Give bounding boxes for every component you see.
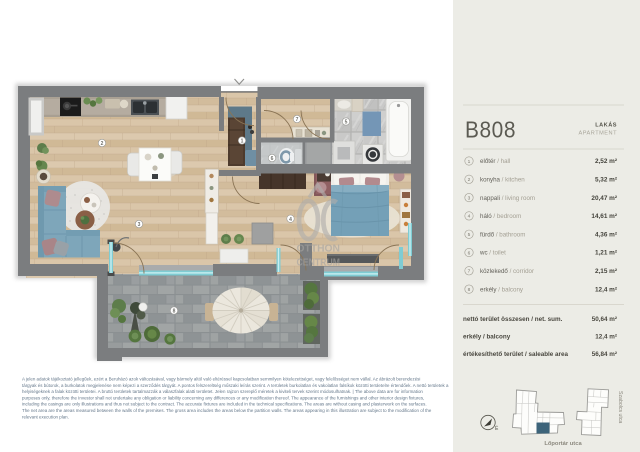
svg-text:erkély / balcony: erkély / balcony — [463, 334, 511, 341]
svg-text:50,64 m²: 50,64 m² — [592, 316, 617, 323]
svg-text:14,61 m²: 14,61 m² — [591, 213, 617, 220]
svg-text:értékesíthető terület / saleab: értékesíthető terület / saleable area — [463, 351, 568, 358]
svg-text:Lőportár utca: Lőportár utca — [544, 441, 582, 447]
svg-text:erkély / balcony: erkély / balcony — [480, 286, 524, 293]
svg-text:1: 1 — [468, 159, 471, 165]
svg-text:20,47 m²: 20,47 m² — [591, 195, 617, 202]
svg-text:háló / bedroom: háló / bedroom — [480, 213, 521, 220]
svg-text:2,52 m²: 2,52 m² — [595, 158, 617, 165]
svg-text:3: 3 — [138, 222, 141, 228]
svg-text:konyha / kitchen: konyha / kitchen — [480, 177, 525, 184]
svg-text:purposes only, therefore the I: purposes only, therefore the Investor sh… — [22, 395, 424, 400]
svg-text:2,15 m²: 2,15 m² — [595, 268, 617, 275]
svg-text:8: 8 — [173, 309, 176, 315]
svg-text:12,4 m²: 12,4 m² — [595, 334, 617, 341]
svg-text:CENTRUM: CENTRUM — [297, 257, 341, 269]
svg-text:4: 4 — [468, 214, 471, 220]
svg-text:The net area are the areas mea: The net area are the areas measured betw… — [22, 408, 432, 413]
svg-text:helyiségeknek a falak közötti: helyiségeknek a falak közötti területei.… — [22, 389, 423, 394]
svg-text:wc / toilet: wc / toilet — [479, 250, 506, 257]
svg-text:6: 6 — [468, 250, 471, 256]
svg-text:5: 5 — [345, 120, 348, 126]
svg-text:LAKÁS: LAKÁS — [595, 122, 617, 129]
svg-text:Szabolcs utca: Szabolcs utca — [617, 391, 623, 423]
svg-text:APARTMENT: APARTMENT — [579, 131, 618, 137]
svg-text:előtér / hall: előtér / hall — [480, 158, 510, 165]
svg-text:B808: B808 — [465, 117, 516, 143]
svg-text:6: 6 — [271, 156, 274, 162]
svg-text:5,32 m²: 5,32 m² — [595, 177, 617, 184]
svg-text:nappali / living room: nappali / living room — [480, 195, 535, 202]
svg-text:4: 4 — [289, 217, 292, 223]
svg-text:közlekedő / corridor: közlekedő / corridor — [480, 268, 534, 275]
svg-text:including the casings are only: including the casings are only illustrat… — [22, 402, 427, 407]
svg-text:56,84 m²: 56,84 m² — [592, 351, 617, 358]
svg-text:1: 1 — [241, 139, 244, 145]
svg-text:OTTHON: OTTHON — [297, 243, 341, 255]
svg-text:4,36 m²: 4,36 m² — [595, 231, 617, 238]
svg-text:relevant execution plan.: relevant execution plan. — [22, 414, 69, 419]
svg-text:fürdő / bathroom: fürdő / bathroom — [480, 231, 525, 238]
svg-text:12,4 m²: 12,4 m² — [595, 286, 617, 293]
svg-text:5: 5 — [468, 232, 471, 238]
svg-text:2: 2 — [101, 141, 104, 147]
svg-text:1,21 m²: 1,21 m² — [595, 250, 617, 257]
svg-text:tárgyak és bútorok, a burkolat: tárgyak és bútorok, a burkolatok megjele… — [22, 383, 449, 388]
svg-text:7: 7 — [296, 117, 299, 123]
svg-text:A jelen adatok tájékoztató jel: A jelen adatok tájékoztató jellegűek, ez… — [22, 377, 420, 382]
svg-text:3: 3 — [468, 195, 471, 201]
svg-text:8: 8 — [468, 287, 471, 293]
svg-text:2: 2 — [468, 177, 471, 183]
svg-text:nettó terület összesen / net.: nettó terület összesen / net. sum. — [463, 316, 563, 323]
svg-text:7: 7 — [468, 269, 471, 275]
